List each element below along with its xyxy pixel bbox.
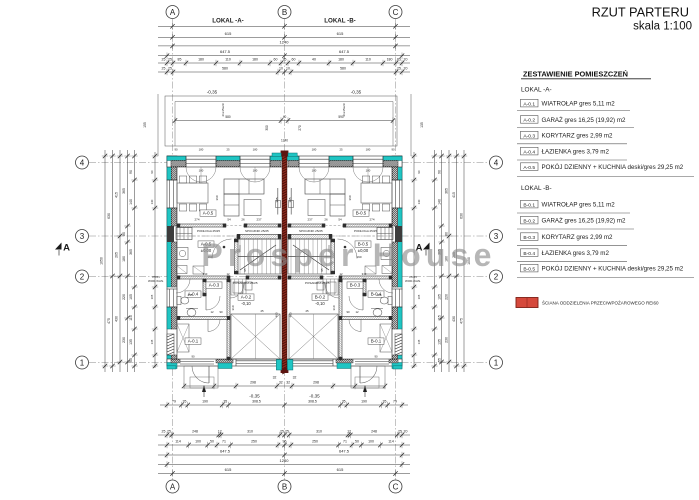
svg-text:40: 40: [283, 115, 287, 119]
svg-text:180: 180: [199, 148, 204, 152]
svg-text:21x15x29: 21x15x29: [342, 103, 346, 116]
svg-text:180: 180: [122, 256, 126, 262]
svg-text:55: 55: [438, 358, 442, 362]
svg-text:298: 298: [313, 380, 319, 384]
svg-text:B-0.3: B-0.3: [523, 235, 535, 241]
svg-text:248: 248: [371, 429, 377, 433]
svg-text:25: 25: [280, 429, 284, 433]
svg-text:C: C: [393, 8, 399, 17]
svg-text:85: 85: [397, 58, 401, 62]
svg-text:365: 365: [445, 188, 449, 194]
svg-text:25: 25: [283, 58, 287, 62]
svg-text:A: A: [170, 8, 176, 17]
svg-text:LOKAL -B-: LOKAL -B-: [324, 18, 356, 25]
svg-text:180: 180: [312, 148, 317, 152]
svg-text:4: 4: [80, 158, 85, 167]
svg-text:PODŁOGA 25/25: PODŁOGA 25/25: [197, 229, 220, 233]
svg-text:230: 230: [445, 337, 449, 343]
svg-text:A-0.1: A-0.1: [523, 101, 535, 107]
svg-text:54: 54: [338, 218, 342, 222]
svg-text:32: 32: [273, 376, 277, 380]
svg-text:12: 12: [210, 310, 214, 314]
svg-text:35: 35: [183, 399, 187, 403]
svg-text:A-0.4: A-0.4: [523, 149, 535, 155]
svg-text:25: 25: [285, 429, 289, 433]
svg-text:2: 2: [80, 272, 85, 281]
svg-text:20: 20: [404, 429, 408, 433]
svg-text:skala 1:100: skala 1:100: [633, 21, 692, 33]
svg-text:LOKAL -A-: LOKAL -A-: [212, 18, 244, 25]
svg-text:90: 90: [174, 148, 178, 152]
svg-text:B-0.2: B-0.2: [315, 295, 326, 300]
svg-text:1: 1: [80, 358, 85, 367]
svg-text:GARAŻ gres 16,25 (19,92) m2: GARAŻ gres 16,25 (19,92) m2: [542, 117, 626, 124]
svg-text:180: 180: [253, 169, 258, 173]
svg-text:250: 250: [312, 439, 318, 443]
svg-text:308.5: 308.5: [252, 399, 261, 403]
svg-text:415: 415: [115, 192, 119, 198]
svg-text:180: 180: [253, 148, 258, 152]
svg-text:310: 310: [332, 305, 336, 310]
svg-text:475: 475: [460, 318, 464, 324]
svg-text:-0,35: -0,35: [249, 394, 260, 399]
svg-text:365: 365: [122, 188, 126, 194]
svg-text:180: 180: [366, 148, 371, 152]
svg-text:630: 630: [460, 213, 464, 219]
svg-text:105: 105: [129, 294, 133, 300]
svg-text:60: 60: [292, 58, 296, 62]
svg-text:71: 71: [343, 439, 347, 443]
svg-text:220: 220: [122, 294, 126, 300]
svg-text:140: 140: [150, 199, 154, 204]
svg-text:647.5: 647.5: [220, 448, 231, 453]
svg-text:90: 90: [346, 310, 350, 314]
svg-text:190: 190: [361, 399, 367, 403]
svg-text:25: 25: [397, 67, 401, 71]
svg-text:35: 35: [223, 399, 227, 403]
svg-text:180: 180: [252, 58, 258, 62]
svg-text:220: 220: [445, 294, 449, 300]
svg-text:50: 50: [355, 439, 359, 443]
svg-text:B-0.1: B-0.1: [371, 339, 382, 344]
svg-text:25: 25: [162, 58, 166, 62]
svg-text:305: 305: [288, 197, 292, 202]
svg-text:580: 580: [222, 67, 228, 71]
svg-text:-0,35: -0,35: [351, 90, 362, 95]
svg-text:630: 630: [107, 213, 111, 219]
svg-text:140: 140: [438, 199, 442, 205]
svg-text:POSADZKA 25/25: POSADZKA 25/25: [305, 281, 330, 285]
svg-text:180: 180: [338, 58, 344, 62]
svg-text:WOD./KAN.: WOD./KAN.: [405, 279, 421, 283]
svg-text:79: 79: [393, 399, 397, 403]
svg-text:B-0.3: B-0.3: [350, 283, 361, 288]
svg-text:WIATROŁAP gres 5,11 m2: WIATROŁAP gres 5,11 m2: [542, 202, 616, 209]
svg-text:110: 110: [225, 58, 231, 62]
svg-text:415: 415: [452, 192, 456, 198]
svg-text:35: 35: [383, 399, 387, 403]
svg-text:300: 300: [265, 125, 269, 131]
svg-text:365: 365: [129, 249, 133, 255]
svg-text:LOKAL -B-: LOKAL -B-: [521, 185, 552, 192]
svg-text:WOD./KAN.: WOD./KAN.: [148, 279, 164, 283]
svg-text:35: 35: [342, 399, 346, 403]
svg-text:10: 10: [279, 67, 283, 71]
svg-text:180: 180: [312, 169, 317, 173]
svg-text:B-0.5: B-0.5: [356, 211, 367, 216]
svg-text:310: 310: [247, 429, 253, 433]
svg-text:A-0.3: A-0.3: [209, 283, 220, 288]
svg-text:580: 580: [225, 115, 231, 119]
svg-text:POSADZKA 25/25: POSADZKA 25/25: [233, 281, 258, 285]
svg-text:-0,10: -0,10: [315, 301, 325, 306]
svg-text:POKÓJ DZIENNY + KUCHNIA deski: POKÓJ DZIENNY + KUCHNIA deski/gres 29,25…: [542, 266, 684, 273]
svg-text:135: 135: [150, 339, 154, 344]
svg-text:105: 105: [417, 294, 421, 299]
svg-text:310: 310: [316, 429, 322, 433]
svg-text:615: 615: [337, 31, 344, 36]
svg-text:647.5: 647.5: [339, 448, 350, 453]
svg-text:230: 230: [122, 337, 126, 343]
svg-text:90: 90: [438, 170, 442, 174]
svg-text:71: 71: [222, 439, 226, 443]
svg-text:SPOCZNIK 25/25: SPOCZNIK 25/25: [245, 229, 269, 233]
svg-text:135: 135: [129, 339, 133, 345]
svg-text:PODŁOGA 25/25: PODŁOGA 25/25: [354, 229, 377, 233]
svg-text:60: 60: [274, 58, 278, 62]
svg-text:A: A: [170, 482, 176, 491]
svg-text:A-0.2: A-0.2: [241, 295, 252, 300]
svg-text:KORYTARZ gres 2,99 m2: KORYTARZ gres 2,99 m2: [542, 133, 614, 140]
svg-text:WIATROŁAP gres 5,11 m2: WIATROŁAP gres 5,11 m2: [542, 101, 616, 108]
svg-text:270: 270: [298, 125, 302, 131]
svg-text:460: 460: [289, 312, 293, 317]
svg-text:205: 205: [115, 252, 119, 258]
svg-text:B-0.1: B-0.1: [523, 202, 535, 208]
svg-text:155: 155: [187, 293, 192, 297]
svg-text:140: 140: [417, 199, 421, 204]
svg-text:1240: 1240: [280, 458, 290, 463]
svg-text:10: 10: [286, 67, 290, 71]
svg-text:79: 79: [172, 399, 176, 403]
svg-text:KORYTARZ gres 2,99 m2: KORYTARZ gres 2,99 m2: [542, 234, 614, 241]
svg-text:360: 360: [348, 195, 352, 200]
svg-text:A-0.5: A-0.5: [523, 165, 535, 171]
svg-text:SPOCZNIK 25/25: SPOCZNIK 25/25: [299, 229, 323, 233]
svg-text:80: 80: [445, 232, 449, 236]
svg-text:90: 90: [191, 355, 195, 359]
svg-text:ŁAZIENKA gres 3,79 m2: ŁAZIENKA gres 3,79 m2: [542, 250, 610, 257]
svg-text:90: 90: [129, 170, 133, 174]
svg-text:90: 90: [150, 170, 154, 174]
svg-text:A: A: [63, 243, 70, 254]
svg-text:114: 114: [388, 439, 394, 443]
svg-text:647.5: 647.5: [339, 49, 350, 54]
svg-text:A-0.1: A-0.1: [188, 339, 199, 344]
svg-text:25: 25: [226, 148, 230, 152]
svg-text:475: 475: [107, 318, 111, 324]
svg-text:430: 430: [115, 316, 119, 322]
svg-text:90: 90: [219, 310, 223, 314]
svg-text:305: 305: [275, 197, 279, 202]
svg-text:20: 20: [404, 67, 408, 71]
svg-text:1240: 1240: [281, 139, 288, 143]
svg-text:LOKAL -A-: LOKAL -A-: [521, 87, 552, 94]
svg-text:460: 460: [274, 312, 278, 317]
svg-text:360: 360: [215, 195, 219, 200]
svg-text:RZUT PARTERU: RZUT PARTERU: [592, 5, 689, 20]
svg-text:135: 135: [438, 339, 442, 345]
svg-text:25: 25: [162, 429, 166, 433]
svg-text:310: 310: [231, 305, 235, 310]
svg-text:40: 40: [312, 58, 316, 62]
svg-text:615: 615: [225, 31, 232, 36]
svg-text:26: 26: [241, 218, 245, 222]
svg-text:21x15x29: 21x15x29: [221, 103, 225, 116]
svg-text:20: 20: [404, 58, 408, 62]
svg-text:274: 274: [369, 218, 374, 222]
svg-text:647.5: 647.5: [220, 49, 231, 54]
svg-text:298: 298: [250, 380, 256, 384]
svg-text:135: 135: [417, 339, 421, 344]
svg-text:54: 54: [227, 218, 231, 222]
svg-text:110: 110: [365, 58, 371, 62]
svg-text:25: 25: [168, 58, 172, 62]
svg-text:-0,35: -0,35: [309, 394, 320, 399]
svg-text:135: 135: [420, 122, 424, 128]
svg-text:ŚCIANA ODDZIELENIA PRZECIWPOŻA: ŚCIANA ODDZIELENIA PRZECIWPOŻAROWEGO REI…: [542, 299, 659, 306]
svg-text:85: 85: [178, 58, 182, 62]
svg-text:615: 615: [225, 467, 232, 472]
svg-text:2: 2: [494, 272, 499, 281]
svg-text:1240: 1240: [280, 39, 290, 44]
svg-text:96: 96: [283, 439, 287, 443]
svg-text:25: 25: [339, 148, 343, 152]
svg-text:B: B: [282, 482, 287, 491]
svg-text:180: 180: [387, 58, 393, 62]
svg-text:B: B: [282, 8, 287, 17]
svg-text:180: 180: [198, 58, 204, 62]
svg-text:90: 90: [374, 355, 378, 359]
svg-text:250: 250: [251, 439, 257, 443]
svg-text:32: 32: [286, 380, 290, 384]
svg-text:12: 12: [347, 429, 351, 433]
svg-text:POKÓJ DZIENNY + KUCHNIA deski: POKÓJ DZIENNY + KUCHNIA deski/gres 29,25…: [542, 164, 684, 171]
svg-text:12: 12: [218, 429, 222, 433]
svg-text:ZESTAWIENIE POMIESZCZEŃ: ZESTAWIENIE POMIESZCZEŃ: [523, 70, 628, 79]
svg-text:25: 25: [398, 429, 402, 433]
svg-text:4: 4: [494, 158, 499, 167]
svg-text:3: 3: [80, 232, 85, 241]
svg-text:12: 12: [355, 310, 359, 314]
svg-text:114: 114: [175, 439, 181, 443]
svg-text:32: 32: [293, 376, 297, 380]
svg-text:1: 1: [494, 358, 499, 367]
svg-text:A-0.3: A-0.3: [523, 133, 535, 139]
svg-text:308.5: 308.5: [308, 399, 317, 403]
svg-text:C: C: [393, 482, 399, 491]
svg-text:B-0.4: B-0.4: [523, 251, 535, 257]
svg-text:100: 100: [195, 439, 201, 443]
svg-text:274: 274: [194, 218, 199, 222]
svg-text:237: 237: [307, 218, 312, 222]
svg-text:ŁAZIENKA gres 3,79 m2: ŁAZIENKA gres 3,79 m2: [542, 149, 610, 156]
svg-text:-0,10: -0,10: [241, 301, 251, 306]
svg-text:B-0.5: B-0.5: [523, 266, 535, 272]
svg-text:100: 100: [368, 439, 374, 443]
svg-text:140: 140: [129, 199, 133, 205]
svg-text:90: 90: [391, 148, 395, 152]
svg-text:80: 80: [122, 232, 126, 236]
svg-text:GARAŻ gres 16,25 (19,92) m2: GARAŻ gres 16,25 (19,92) m2: [542, 218, 626, 225]
svg-text:430: 430: [452, 316, 456, 322]
svg-text:26: 26: [324, 218, 328, 222]
svg-text:155: 155: [376, 293, 381, 297]
svg-text:155: 155: [143, 122, 147, 128]
svg-text:105: 105: [438, 294, 442, 300]
svg-text:90: 90: [417, 170, 421, 174]
svg-text:25: 25: [260, 309, 264, 313]
svg-text:A-0.5: A-0.5: [203, 211, 214, 216]
svg-text:248: 248: [192, 429, 198, 433]
svg-text:A-0.2: A-0.2: [523, 118, 535, 124]
svg-text:25: 25: [305, 309, 309, 313]
svg-text:1050: 1050: [100, 257, 104, 265]
svg-text:615: 615: [337, 467, 344, 472]
svg-text:32: 32: [279, 380, 283, 384]
svg-text:Prosper House: Prosper House: [201, 237, 496, 273]
svg-text:B-0.2: B-0.2: [523, 218, 535, 224]
svg-text:25: 25: [168, 67, 172, 71]
svg-text:25: 25: [162, 67, 166, 71]
svg-text:105: 105: [150, 294, 154, 299]
svg-text:25: 25: [167, 429, 171, 433]
svg-text:-0,35: -0,35: [207, 90, 218, 95]
svg-text:190: 190: [202, 399, 208, 403]
svg-text:180: 180: [199, 169, 204, 173]
svg-text:50: 50: [210, 439, 214, 443]
svg-text:580: 580: [340, 67, 346, 71]
svg-text:180: 180: [366, 169, 371, 173]
svg-text:237: 237: [256, 218, 261, 222]
